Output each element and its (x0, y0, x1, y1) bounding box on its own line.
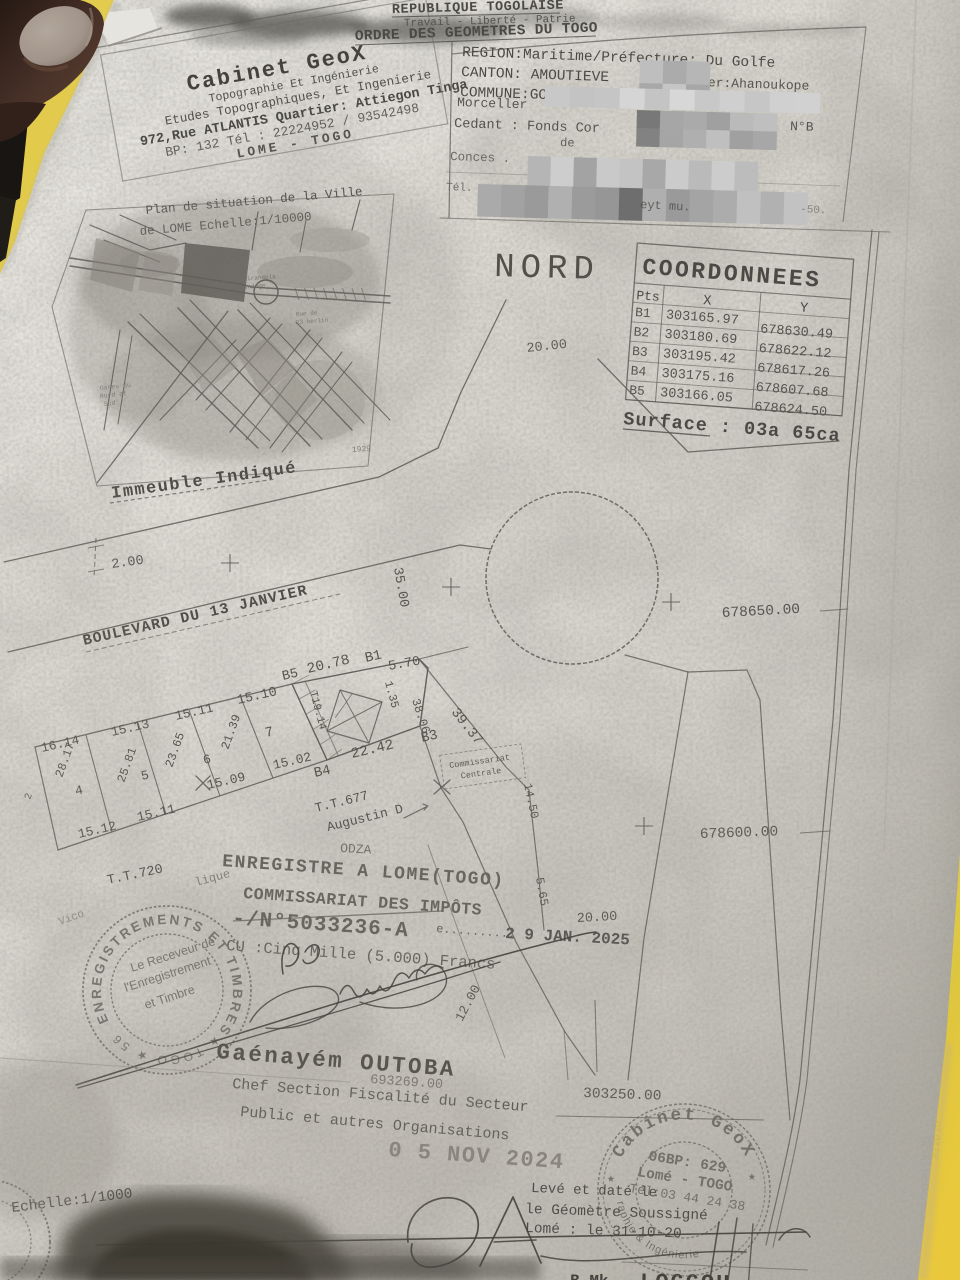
svg-text:B.Mk: B.Mk (570, 1272, 609, 1280)
svg-text:Sud: Sud (103, 400, 115, 408)
svg-text:B1: B1 (635, 305, 652, 321)
svg-text:de: de (560, 136, 575, 150)
svg-text:20.00: 20.00 (576, 910, 617, 927)
svg-text:★: ★ (607, 1171, 615, 1186)
svg-text:Tél.: Tél. (446, 182, 473, 195)
svg-text:Pts: Pts (636, 288, 660, 305)
svg-text:-50.: -50. (800, 204, 827, 217)
svg-text:08 08 08: 08 08 08 (903, 1197, 916, 1240)
svg-text:eyt mu.: eyt mu. (640, 198, 691, 215)
svg-text:B4: B4 (630, 363, 647, 379)
svg-text:B3: B3 (632, 344, 649, 360)
svg-text:678600.00: 678600.00 (700, 824, 779, 843)
svg-text:Conces .: Conces . (450, 150, 510, 166)
svg-text:B5: B5 (629, 383, 646, 399)
svg-text:1929: 1929 (352, 445, 372, 455)
svg-text:Morceller: Morceller (457, 95, 528, 112)
svg-text:ODZA: ODZA (340, 841, 372, 858)
svg-text:★: ★ (748, 1169, 756, 1184)
svg-text:303250.00: 303250.00 (583, 1086, 662, 1105)
svg-text:N°B: N°B (790, 119, 814, 135)
svg-text:B2: B2 (633, 325, 650, 341)
svg-text:NORD: NORD (494, 249, 601, 290)
